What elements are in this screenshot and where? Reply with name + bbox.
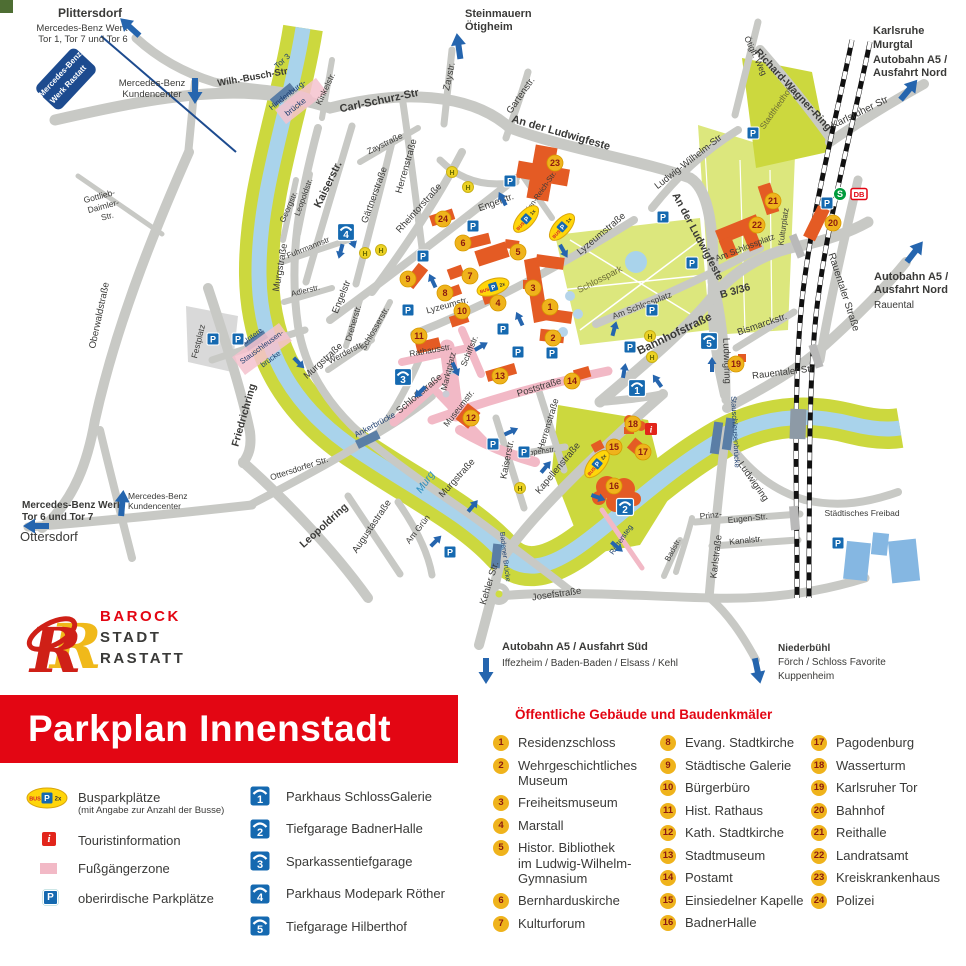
building-number-badge: 14	[660, 870, 676, 886]
building-list-item: 17Pagodenburg	[811, 735, 961, 751]
sbahn-logo-icon: S	[834, 188, 847, 201]
building-list-item: 6Bernharduskirche	[493, 893, 653, 909]
building-label: Pagodenburg	[836, 735, 914, 751]
poi-marker: 11	[411, 328, 427, 344]
building-list-item: 19Karlsruher Tor	[811, 780, 961, 796]
p-letter: P	[500, 325, 506, 335]
map-label: Ausfahrt Nord	[873, 67, 947, 79]
building-number-badge: 20	[811, 803, 827, 819]
building-number-badge: 15	[660, 893, 676, 909]
garage-legend-item: 4 Parkhaus Modepark Röther	[250, 884, 445, 904]
garage-list: 1 Parkhaus SchlossGalerie 2 Tiefgarage B…	[250, 786, 445, 949]
garage-number: 1	[634, 386, 640, 397]
poi-number: 20	[828, 218, 838, 228]
freibad	[843, 532, 920, 583]
tourist-info-icon: i	[42, 832, 56, 846]
parking-marker: P	[232, 333, 244, 345]
building-number-badge: 6	[493, 893, 509, 909]
poi-number: 1	[547, 302, 552, 312]
p-letter: P	[235, 335, 241, 345]
p-letter: P	[405, 306, 411, 316]
map-label: Plittersdorf	[58, 6, 123, 20]
poi-marker: 24	[435, 211, 451, 227]
h-letter: H	[378, 248, 383, 255]
building-label: Städtische Galerie	[685, 758, 791, 774]
building-label: Hist. Rathaus	[685, 803, 763, 819]
building-number-badge: 11	[660, 803, 676, 819]
h-letter: H	[649, 355, 654, 362]
poi-number: 16	[609, 481, 619, 491]
map-label: Niederbühl	[778, 643, 830, 654]
buildings-column-2: 8Evang. Stadtkirche9Städtische Galerie10…	[660, 735, 815, 931]
oneway-arrow	[425, 272, 439, 289]
bus-stop-marker: H	[447, 167, 458, 178]
surface-parking-icon: P	[43, 890, 58, 905]
building-label: Einsiedelner Kapelle	[685, 893, 804, 909]
map-label: Autobahn A5 /	[874, 271, 948, 283]
building-list-item: 11Hist. Rathaus	[660, 803, 815, 819]
svg-text:P: P	[44, 793, 50, 803]
garage-legend-icon: 3	[250, 851, 270, 871]
svg-text:2: 2	[257, 827, 263, 839]
map-label: Steinmauern	[465, 8, 532, 20]
poi-number: 2	[550, 333, 555, 343]
tourist-info-marker: i	[645, 423, 657, 435]
bus-stop-marker: H	[645, 331, 656, 342]
building-label: Bernharduskirche	[518, 893, 620, 909]
poi-marker: 6	[455, 235, 471, 251]
legend-bus-note: (mit Angabe zur Anzahl der Busse)	[78, 805, 224, 816]
poi-number: 13	[495, 371, 505, 381]
h-letter: H	[362, 251, 367, 258]
map-label: Städtisches Freibad	[824, 508, 899, 518]
buildings-column-3: 17Pagodenburg18Wasserturm19Karlsruher To…	[811, 735, 961, 909]
map-label: Ottersdorf	[20, 529, 78, 544]
building-label: WehrgeschichtlichesMuseum	[518, 758, 637, 789]
p-letter: P	[470, 222, 476, 232]
map-label: Murgtal	[873, 39, 913, 51]
garage-legend-icon: 2	[250, 819, 270, 839]
p-letter: P	[420, 252, 426, 262]
poi-number: 9	[405, 274, 410, 284]
building-list-item: 3Freiheitsmuseum	[493, 795, 653, 811]
bus-stop-marker: H	[647, 352, 658, 363]
garage-number: 3	[400, 375, 406, 386]
garage-number: 5	[706, 339, 712, 350]
p-letter: P	[689, 259, 695, 269]
poi-marker: 3	[525, 280, 541, 296]
garage-legend-icon: 1	[250, 786, 270, 806]
poi-number: 22	[752, 220, 762, 230]
p-letter: P	[649, 306, 655, 316]
building-number-badge: 16	[660, 915, 676, 931]
svg-text:2x: 2x	[55, 797, 62, 803]
building-number-badge: 23	[811, 870, 827, 886]
building-list-item: 20Bahnhof	[811, 803, 961, 819]
building-list-item: 8Evang. Stadtkirche	[660, 735, 815, 751]
garage-legend-label: Parkhaus Modepark Röther	[286, 886, 445, 901]
poi-number: 12	[466, 413, 476, 423]
map-label: Str.	[100, 210, 115, 223]
poi-marker: 21	[765, 193, 781, 209]
map-label: Eugen-Str.	[727, 511, 768, 525]
poi-marker: 17	[635, 444, 651, 460]
poi-marker: 1	[542, 299, 558, 315]
map-label: Iffezheim / Baden-Baden / Elsass / Kehl	[502, 658, 678, 669]
building-number-badge: 21	[811, 825, 827, 841]
legend-bus-label: Busparkplätze	[78, 790, 160, 805]
building-list-item: 13Stadtmuseum	[660, 848, 815, 864]
garage-marker: 1	[629, 380, 646, 398]
poi-number: 24	[438, 214, 448, 224]
map-label: Karlsruhe	[873, 25, 924, 37]
p-letter: P	[507, 177, 513, 187]
poi-marker: 19	[728, 356, 744, 372]
map-label: Mercedes-Benz	[119, 78, 186, 89]
poi-number: 3	[530, 283, 535, 293]
oneway-arrow	[428, 532, 445, 549]
building-list-item: 1Residenzschloss	[493, 735, 653, 751]
poi-marker: 15	[606, 439, 622, 455]
building-label: Reithalle	[836, 825, 887, 841]
map-label: Ötigheim	[465, 20, 513, 33]
poi-marker: 16	[606, 478, 622, 494]
bus-stop-marker: H	[515, 483, 526, 494]
p-letter: P	[447, 548, 453, 558]
oneway-arrow	[649, 372, 665, 389]
parking-marker: P	[444, 546, 456, 558]
building-list-item: 24Polizei	[811, 893, 961, 909]
map-label: Kundencenter	[128, 501, 181, 511]
p-letter: P	[210, 335, 216, 345]
poi-number: 17	[638, 447, 648, 457]
legend-pedestrian-label: Fußgängerzone	[78, 861, 170, 876]
p-letter: P	[835, 539, 841, 549]
db-logo-icon: DB	[851, 189, 867, 200]
map-label: Mercedes-Benz	[128, 491, 188, 501]
p-letter: P	[521, 448, 527, 458]
parking-marker: P	[467, 220, 479, 232]
map-label: Zaystr.	[441, 61, 458, 91]
map-label: Autobahn A5 / Ausfahrt Süd	[502, 641, 648, 653]
bus-stop-marker: H	[360, 248, 371, 259]
map-label: Carl-Schurz-Str	[339, 87, 421, 116]
s-letter: S	[837, 189, 843, 199]
garage-legend-item: 1 Parkhaus SchlossGalerie	[250, 786, 445, 806]
building-number-badge: 9	[660, 758, 676, 774]
building-label: BadnerHalle	[685, 915, 757, 931]
building-number-badge: 17	[811, 735, 827, 751]
map-label: Gartenstr.	[504, 75, 537, 115]
map-label: Ausfahrt Nord	[874, 284, 948, 296]
title-banner: Parkplan Innenstadt	[0, 695, 458, 763]
poi-number: 11	[414, 331, 424, 341]
building-list-item: 2WehrgeschichtlichesMuseum	[493, 758, 653, 789]
garage-legend-label: Sparkassentiefgarage	[286, 854, 412, 869]
parking-marker: P	[646, 304, 658, 316]
map-label: Oberwaldstraße	[87, 281, 112, 349]
garage-legend-item: 2 Tiefgarage BadnerHalle	[250, 819, 445, 839]
svg-text:1: 1	[257, 794, 263, 806]
building-number-badge: 7	[493, 916, 509, 932]
poi-marker: 23	[547, 155, 563, 171]
parking-marker: P	[821, 197, 833, 209]
building-label: Kreiskrankenhaus	[836, 870, 940, 886]
poi-marker: 9	[400, 271, 416, 287]
p-letter: P	[515, 348, 521, 358]
buildings-title: Öffentliche Gebäude und Baudenkmäler	[515, 707, 772, 722]
parking-marker: P	[546, 347, 558, 359]
legend-info-label: Touristinformation	[78, 833, 181, 848]
parking-marker: P	[518, 446, 530, 458]
logo-line-2: STADT	[100, 627, 185, 648]
poi-marker: 14	[564, 373, 580, 389]
building-label: Bürgerbüro	[685, 780, 750, 796]
building-label: Postamt	[685, 870, 733, 886]
city-logo: R R BAROCK STADT RASTATT	[22, 596, 262, 688]
parking-marker: P	[504, 175, 516, 187]
poi-marker: 12	[463, 410, 479, 426]
svg-text:3: 3	[257, 859, 263, 871]
svg-text:4: 4	[257, 892, 264, 904]
building-list-item: 21Reithalle	[811, 825, 961, 841]
p-letter: P	[627, 343, 633, 353]
building-number-badge: 1	[493, 735, 509, 751]
building-list-item: 5Histor. Bibliothekim Ludwig-Wilhelm-Gym…	[493, 840, 653, 887]
parking-marker: P	[657, 211, 669, 223]
building-list-item: 14Postamt	[660, 870, 815, 886]
direction-arrow	[748, 657, 768, 686]
pedestrian-zone-icon	[40, 863, 57, 874]
map-label: Zaystraße	[365, 130, 404, 156]
direction-arrow-icon	[479, 658, 494, 684]
building-label: Residenzschloss	[518, 735, 616, 751]
building-list-item: 7Kulturforum	[493, 916, 653, 932]
city-map: PlittersdorfMercedes-Benz WerkTor 1, Tor…	[0, 0, 966, 700]
svg-text:BUS: BUS	[29, 797, 41, 803]
building-number-badge: 10	[660, 780, 676, 796]
poi-marker: 18	[625, 416, 641, 432]
poi-number: 10	[457, 306, 467, 316]
garage-legend-item: 3 Sparkassentiefgarage	[250, 851, 445, 871]
building-number-badge: 22	[811, 848, 827, 864]
poi-marker: 7	[462, 268, 478, 284]
p-letter: P	[824, 199, 830, 209]
poi-number: 6	[460, 238, 465, 248]
building-list-item: 18Wasserturm	[811, 758, 961, 774]
p-letter: P	[490, 440, 496, 450]
poi-marker: 22	[749, 217, 765, 233]
building-label: Landratsamt	[836, 848, 908, 864]
building-label: Wasserturm	[836, 758, 906, 774]
parking-marker: P	[686, 257, 698, 269]
map-label: Mercedes-Benz Werk	[22, 500, 123, 511]
garage-number: 4	[343, 230, 349, 241]
poi-number: 23	[550, 158, 560, 168]
building-label: Kulturforum	[518, 916, 585, 932]
map-label: Mercedes-Benz Werk	[36, 23, 127, 34]
db-letters: DB	[854, 190, 865, 199]
building-number-badge: 12	[660, 825, 676, 841]
oneway-arrow-icon	[649, 372, 665, 389]
building-label: Histor. Bibliothekim Ludwig-Wilhelm-Gymn…	[518, 840, 631, 887]
parking-marker: P	[497, 323, 509, 335]
poi-number: 5	[515, 247, 520, 257]
building-number-badge: 8	[660, 735, 676, 751]
poi-marker: 20	[825, 215, 841, 231]
direction-arrow-icon	[748, 657, 768, 686]
building-list-item: 23Kreiskrankenhaus	[811, 870, 961, 886]
garage-legend-label: Parkhaus SchlossGalerie	[286, 789, 432, 804]
poi-number: 19	[731, 359, 741, 369]
oneway-arrow-icon	[428, 532, 445, 549]
map-label: Kundencenter	[122, 89, 181, 100]
parkplan-page: { "branding":{"logo_line1":"BAROCK","log…	[0, 0, 966, 966]
poi-marker: 8	[437, 285, 453, 301]
page-title: Parkplan Innenstadt	[0, 708, 391, 750]
h-letter: H	[647, 334, 652, 341]
parking-marker: P	[624, 341, 636, 353]
map-label: Autobahn A5 /	[873, 54, 947, 66]
svg-text:5: 5	[257, 924, 263, 936]
building-label: Freiheitsmuseum	[518, 795, 618, 811]
poi-number: 21	[768, 196, 778, 206]
building-label: Evang. Stadtkirche	[685, 735, 794, 751]
garage-legend-icon: 5	[250, 916, 270, 936]
building-number-badge: 18	[811, 758, 827, 774]
poi-number: 14	[567, 376, 577, 386]
building-number-badge: 19	[811, 780, 827, 796]
garage-number: 2	[622, 505, 628, 516]
building-label: Marstall	[518, 818, 564, 834]
poi-marker: 10	[454, 303, 470, 319]
building-number-badge: 13	[660, 848, 676, 864]
building-label: Karlsruher Tor	[836, 780, 917, 796]
parking-marker: P	[402, 304, 414, 316]
h-letter: H	[517, 486, 522, 493]
poi-number: 18	[628, 419, 638, 429]
building-label: Stadtmuseum	[685, 848, 765, 864]
building-label: Bahnhof	[836, 803, 884, 819]
logo-wordmark: BAROCK STADT RASTATT	[100, 606, 185, 669]
parking-marker: P	[832, 537, 844, 549]
parking-marker: P	[487, 438, 499, 450]
map-label: Kuppenheim	[778, 671, 834, 682]
building-list-item: 15Einsiedelner Kapelle	[660, 893, 815, 909]
map-label: Förch / Schloss Favorite	[778, 657, 886, 668]
poi-number: 4	[495, 298, 500, 308]
parking-marker: P	[207, 333, 219, 345]
garage-legend-label: Tiefgarage Hilberthof	[286, 919, 407, 934]
p-letter: P	[549, 349, 555, 359]
bus-stop-marker: H	[376, 245, 387, 256]
h-letter: H	[449, 170, 454, 177]
building-label: Kath. Stadtkirche	[685, 825, 784, 841]
parking-marker: P	[512, 346, 524, 358]
p-letter: P	[660, 213, 666, 223]
bus-parking-icon: BUS P 2x	[26, 787, 70, 809]
garage-marker: 2	[617, 499, 634, 517]
direction-arrow	[479, 658, 494, 684]
logo-line-1: BAROCK	[100, 606, 185, 627]
oneway-arrow-icon	[512, 310, 526, 327]
map-label: Josefstraße	[531, 586, 582, 604]
building-number-badge: 5	[493, 840, 509, 856]
garage-legend-icon: 4	[250, 884, 270, 904]
building-list-item: 22Landratsamt	[811, 848, 961, 864]
building-number-badge: 3	[493, 795, 509, 811]
poi-number: 7	[467, 271, 472, 281]
poi-marker: 4	[490, 295, 506, 311]
garage-marker: 4	[338, 224, 355, 242]
poi-number: 8	[442, 288, 447, 298]
poi-number: 15	[609, 442, 619, 452]
building-label: Polizei	[836, 893, 874, 909]
building-list-item: 10Bürgerbüro	[660, 780, 815, 796]
garage-marker: 3	[395, 369, 412, 387]
oneway-arrow	[512, 310, 526, 327]
building-number-badge: 24	[811, 893, 827, 909]
buildings-column-1: 1Residenzschloss2WehrgeschichtlichesMuse…	[493, 735, 653, 932]
h-letter: H	[465, 185, 470, 192]
bus-stop-marker: H	[463, 182, 474, 193]
legend-parking-label: oberirdische Parkplätze	[78, 891, 214, 906]
oneway-arrow-icon	[425, 272, 439, 289]
building-list-item: 9Städtische Galerie	[660, 758, 815, 774]
parking-marker: P	[417, 250, 429, 262]
building-number-badge: 4	[493, 818, 509, 834]
building-number-badge: 2	[493, 758, 509, 774]
poi-marker: 13	[492, 368, 508, 384]
p-letter: P	[750, 129, 756, 139]
logo-line-3: RASTATT	[100, 648, 185, 669]
map-label: Tor 1, Tor 7 und Tor 6	[38, 34, 127, 45]
parking-marker: P	[747, 127, 759, 139]
garage-marker: 5	[701, 333, 718, 351]
poi-marker: 5	[510, 244, 526, 260]
map-label: Rauental	[874, 300, 914, 311]
poi-marker: 2	[545, 330, 561, 346]
garage-legend-item: 5 Tiefgarage Hilberthof	[250, 916, 445, 936]
building-list-item: 4Marstall	[493, 818, 653, 834]
building-list-item: 12Kath. Stadtkirche	[660, 825, 815, 841]
garage-legend-label: Tiefgarage BadnerHalle	[286, 821, 423, 836]
building-list-item: 16BadnerHalle	[660, 915, 815, 931]
